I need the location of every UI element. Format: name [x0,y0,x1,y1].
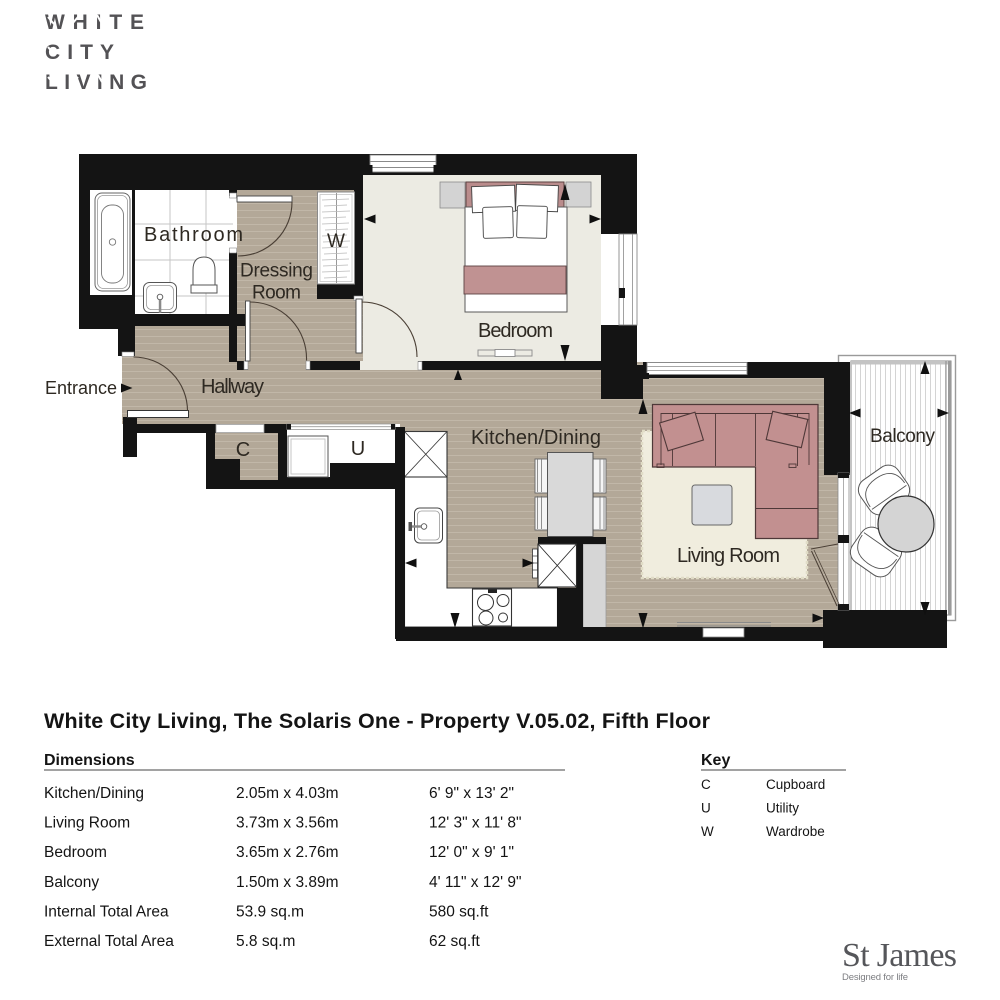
svg-text:6' 9" x 13' 2": 6' 9" x 13' 2" [429,785,514,802]
svg-text:White City Living, The Solaris: White City Living, The Solaris One - Pro… [44,709,711,733]
svg-text:U: U [351,438,365,460]
svg-text:Room: Room [252,283,301,304]
svg-text:CITY: CITY [45,41,121,64]
svg-text:Wardrobe: Wardrobe [766,824,825,839]
svg-text:62 sq.ft: 62 sq.ft [429,933,481,950]
svg-text:Balcony: Balcony [870,426,936,447]
svg-text:WHITE: WHITE [45,11,151,34]
svg-text:W: W [701,824,714,839]
svg-text:Balcony: Balcony [44,874,99,891]
svg-text:Utility: Utility [766,801,799,816]
svg-text:Internal Total Area: Internal Total Area [44,904,169,921]
svg-text:1.50m x 3.89m: 1.50m x 3.89m [236,874,339,891]
svg-text:12' 3" x 11' 8": 12' 3" x 11' 8" [429,815,521,832]
svg-text:Kitchen/Dining: Kitchen/Dining [44,785,144,802]
svg-text:Designed for life: Designed for life [842,972,908,983]
svg-text:Entrance: Entrance [45,378,117,398]
svg-text:Bathroom: Bathroom [144,224,243,246]
svg-text:580 sq.ft: 580 sq.ft [429,904,489,921]
svg-text:W: W [327,231,345,252]
svg-text:C: C [701,777,711,792]
svg-text:53.9 sq.m: 53.9 sq.m [236,904,304,921]
svg-text:Cupboard: Cupboard [766,777,825,792]
svg-text:Dimensions: Dimensions [44,752,135,769]
svg-text:Living Room: Living Room [44,815,130,832]
svg-text:Living Room: Living Room [677,545,780,567]
svg-text:Dressing: Dressing [240,261,313,282]
svg-text:Bedroom: Bedroom [478,320,553,342]
svg-text:Kitchen/Dining: Kitchen/Dining [471,427,601,449]
svg-text:3.65m x 2.76m: 3.65m x 2.76m [236,844,339,861]
svg-text:U: U [701,801,711,816]
svg-text:3.73m x 3.56m: 3.73m x 3.56m [236,815,339,832]
svg-text:2.05m x 4.03m: 2.05m x 4.03m [236,785,339,802]
svg-text:Hallway: Hallway [201,376,264,398]
svg-text:LIVING: LIVING [45,71,154,94]
svg-text:4' 11" x 12' 9": 4' 11" x 12' 9" [429,874,521,891]
svg-text:12' 0" x 9' 1": 12' 0" x 9' 1" [429,844,514,861]
svg-text:St James: St James [842,937,957,974]
svg-text:External Total Area: External Total Area [44,933,174,950]
svg-text:C: C [236,439,250,461]
svg-text:Key: Key [701,752,730,769]
svg-text:5.8 sq.m: 5.8 sq.m [236,933,295,950]
svg-text:Bedroom: Bedroom [44,844,107,861]
